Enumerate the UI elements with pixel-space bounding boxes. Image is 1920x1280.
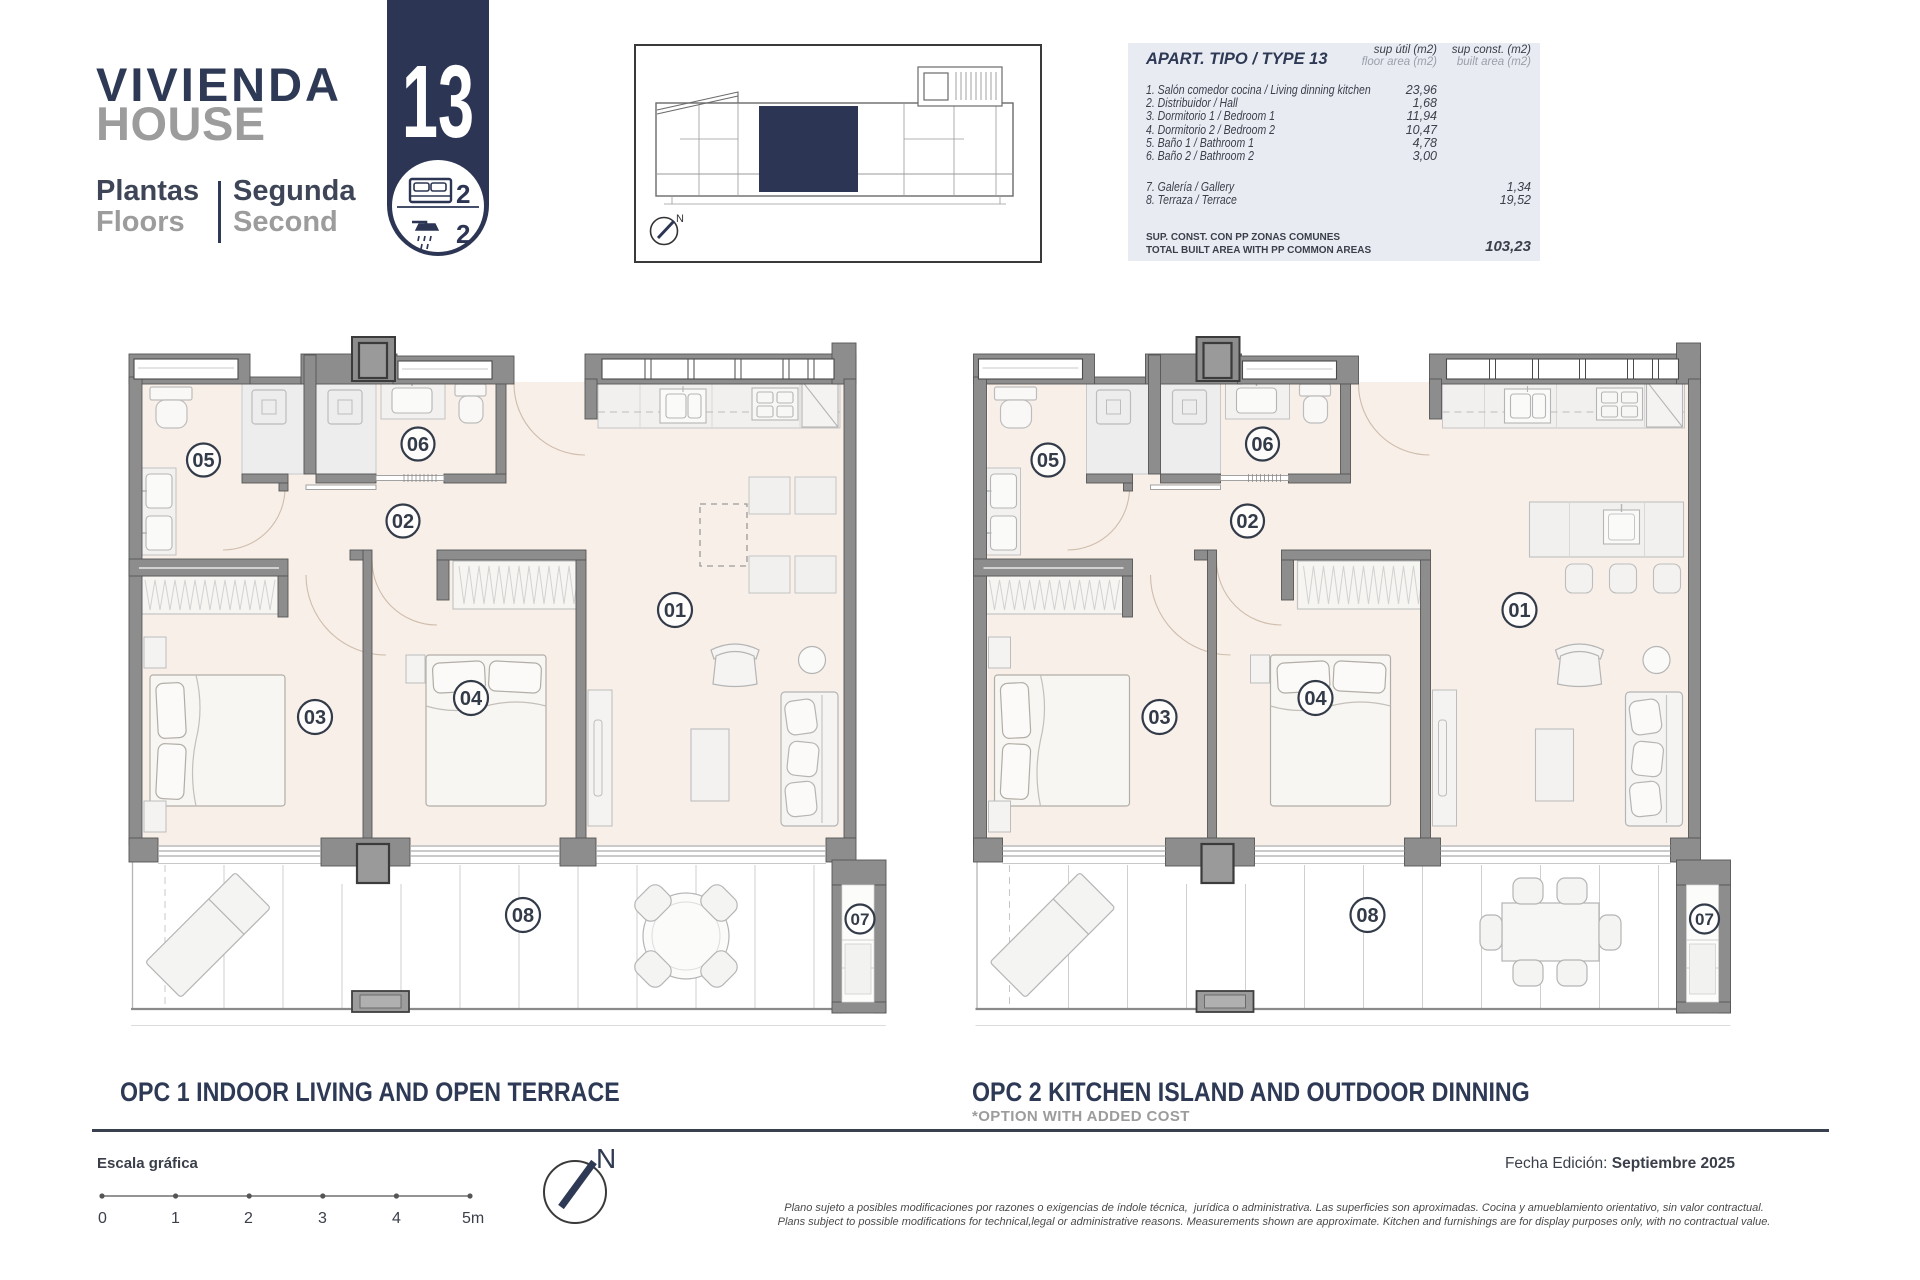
svg-text:4: 4 <box>392 1210 401 1227</box>
svg-text:N: N <box>596 1143 616 1174</box>
svg-text:1: 1 <box>171 1210 180 1227</box>
svg-text:5m: 5m <box>462 1210 484 1227</box>
svg-text:0: 0 <box>98 1210 107 1227</box>
svg-text:3: 3 <box>318 1210 327 1227</box>
svg-text:2: 2 <box>244 1210 253 1227</box>
